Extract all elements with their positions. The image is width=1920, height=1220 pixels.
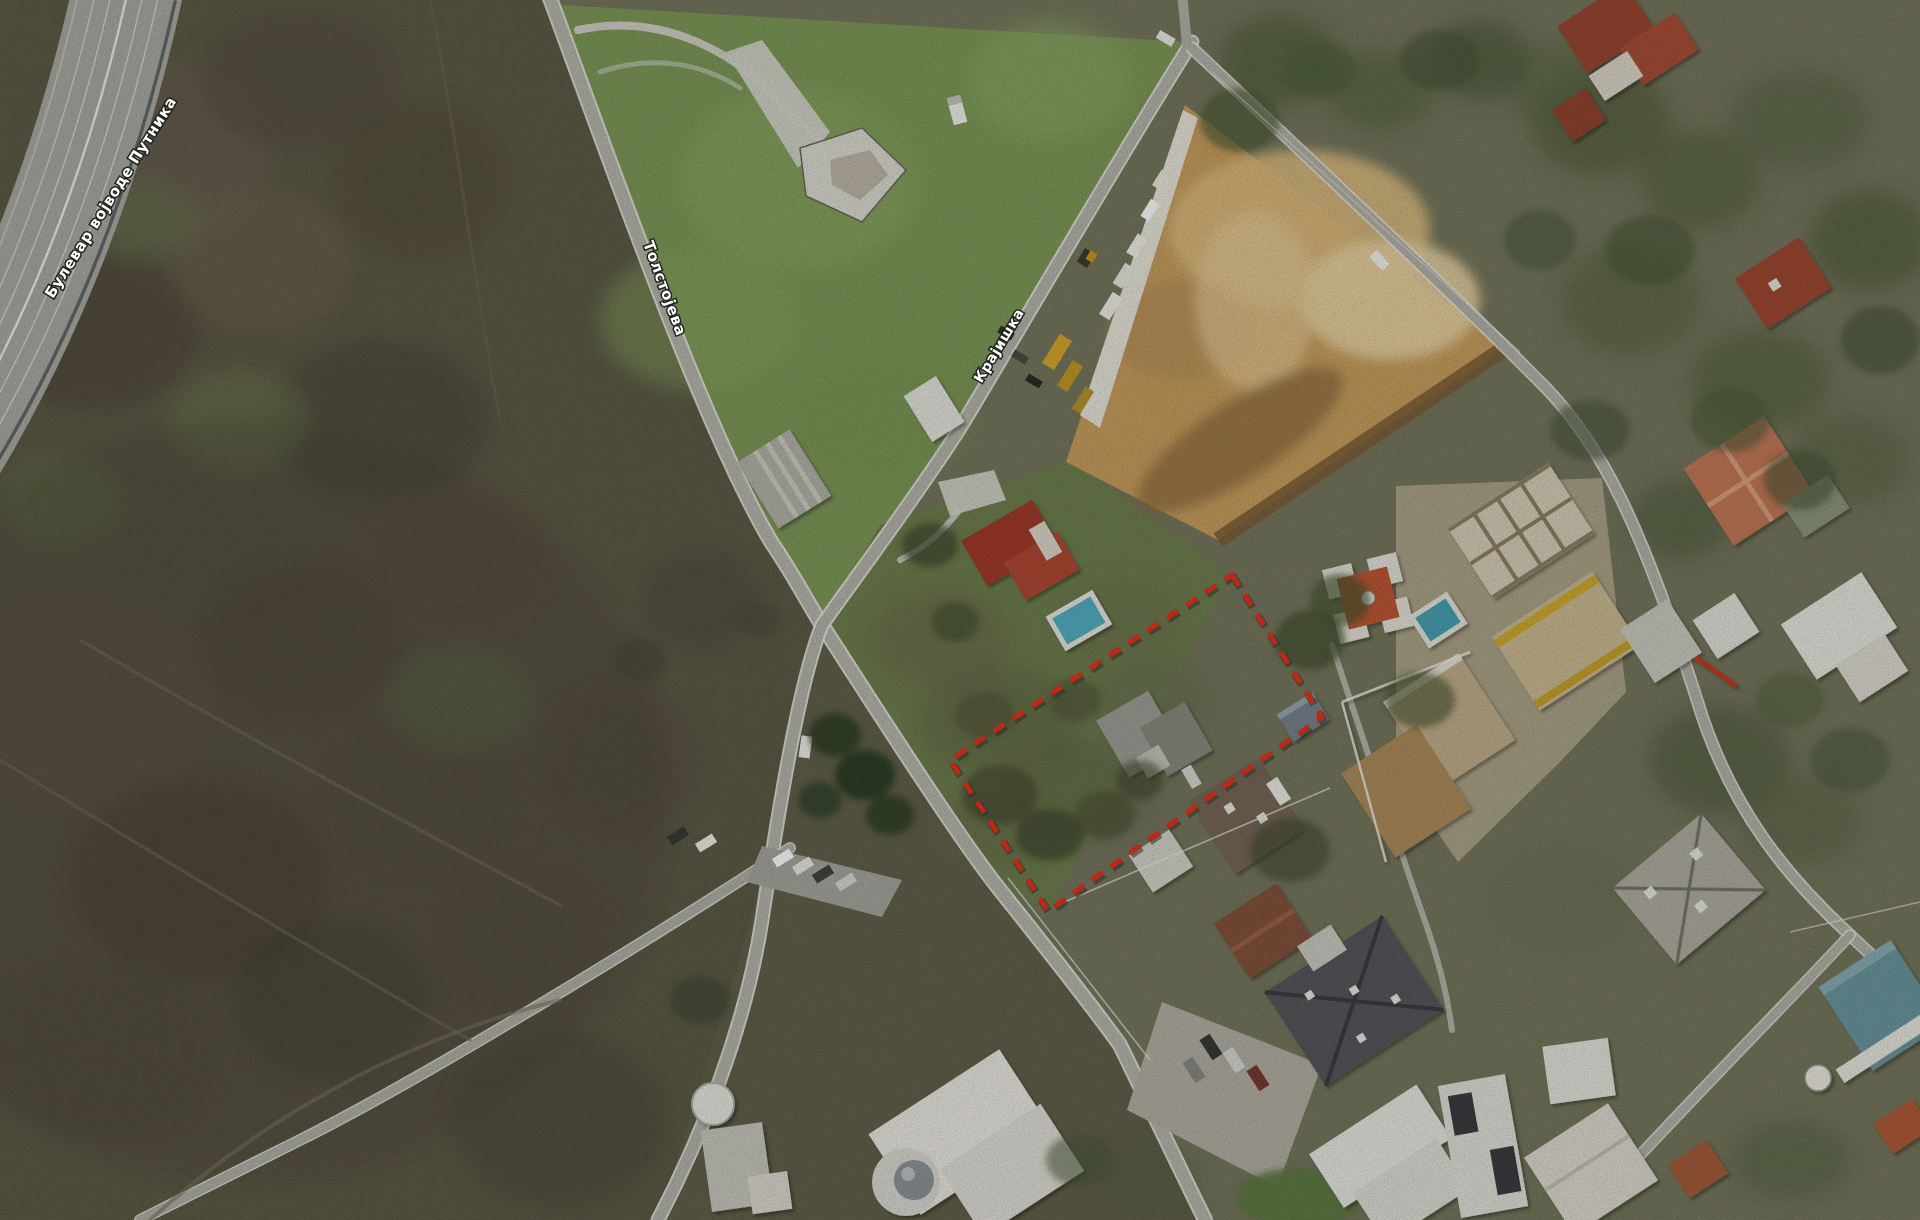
satellite-map-view[interactable]: Булевар војводе Путника Толстојева Краји… (0, 0, 1920, 1220)
map-canvas[interactable]: Булевар војводе Путника Толстојева Краји… (0, 0, 1920, 1220)
photo-grain-overlay (0, 0, 1920, 1220)
